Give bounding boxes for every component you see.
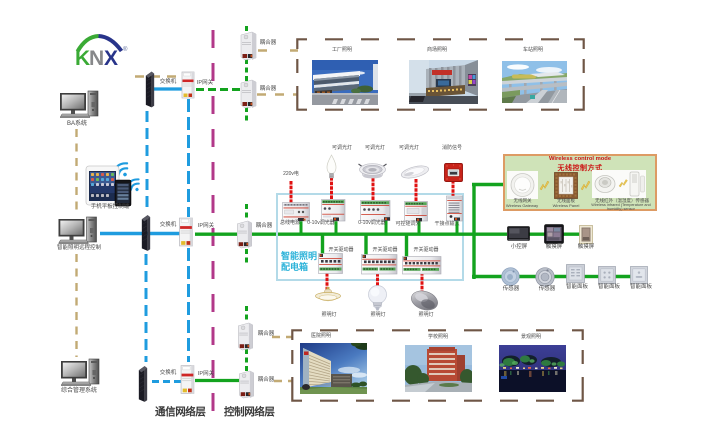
svg-text:®: ® (123, 46, 128, 53)
svg-text:K: K (75, 47, 90, 69)
svg-text:X: X (104, 47, 118, 69)
svg-text:N: N (89, 47, 104, 69)
